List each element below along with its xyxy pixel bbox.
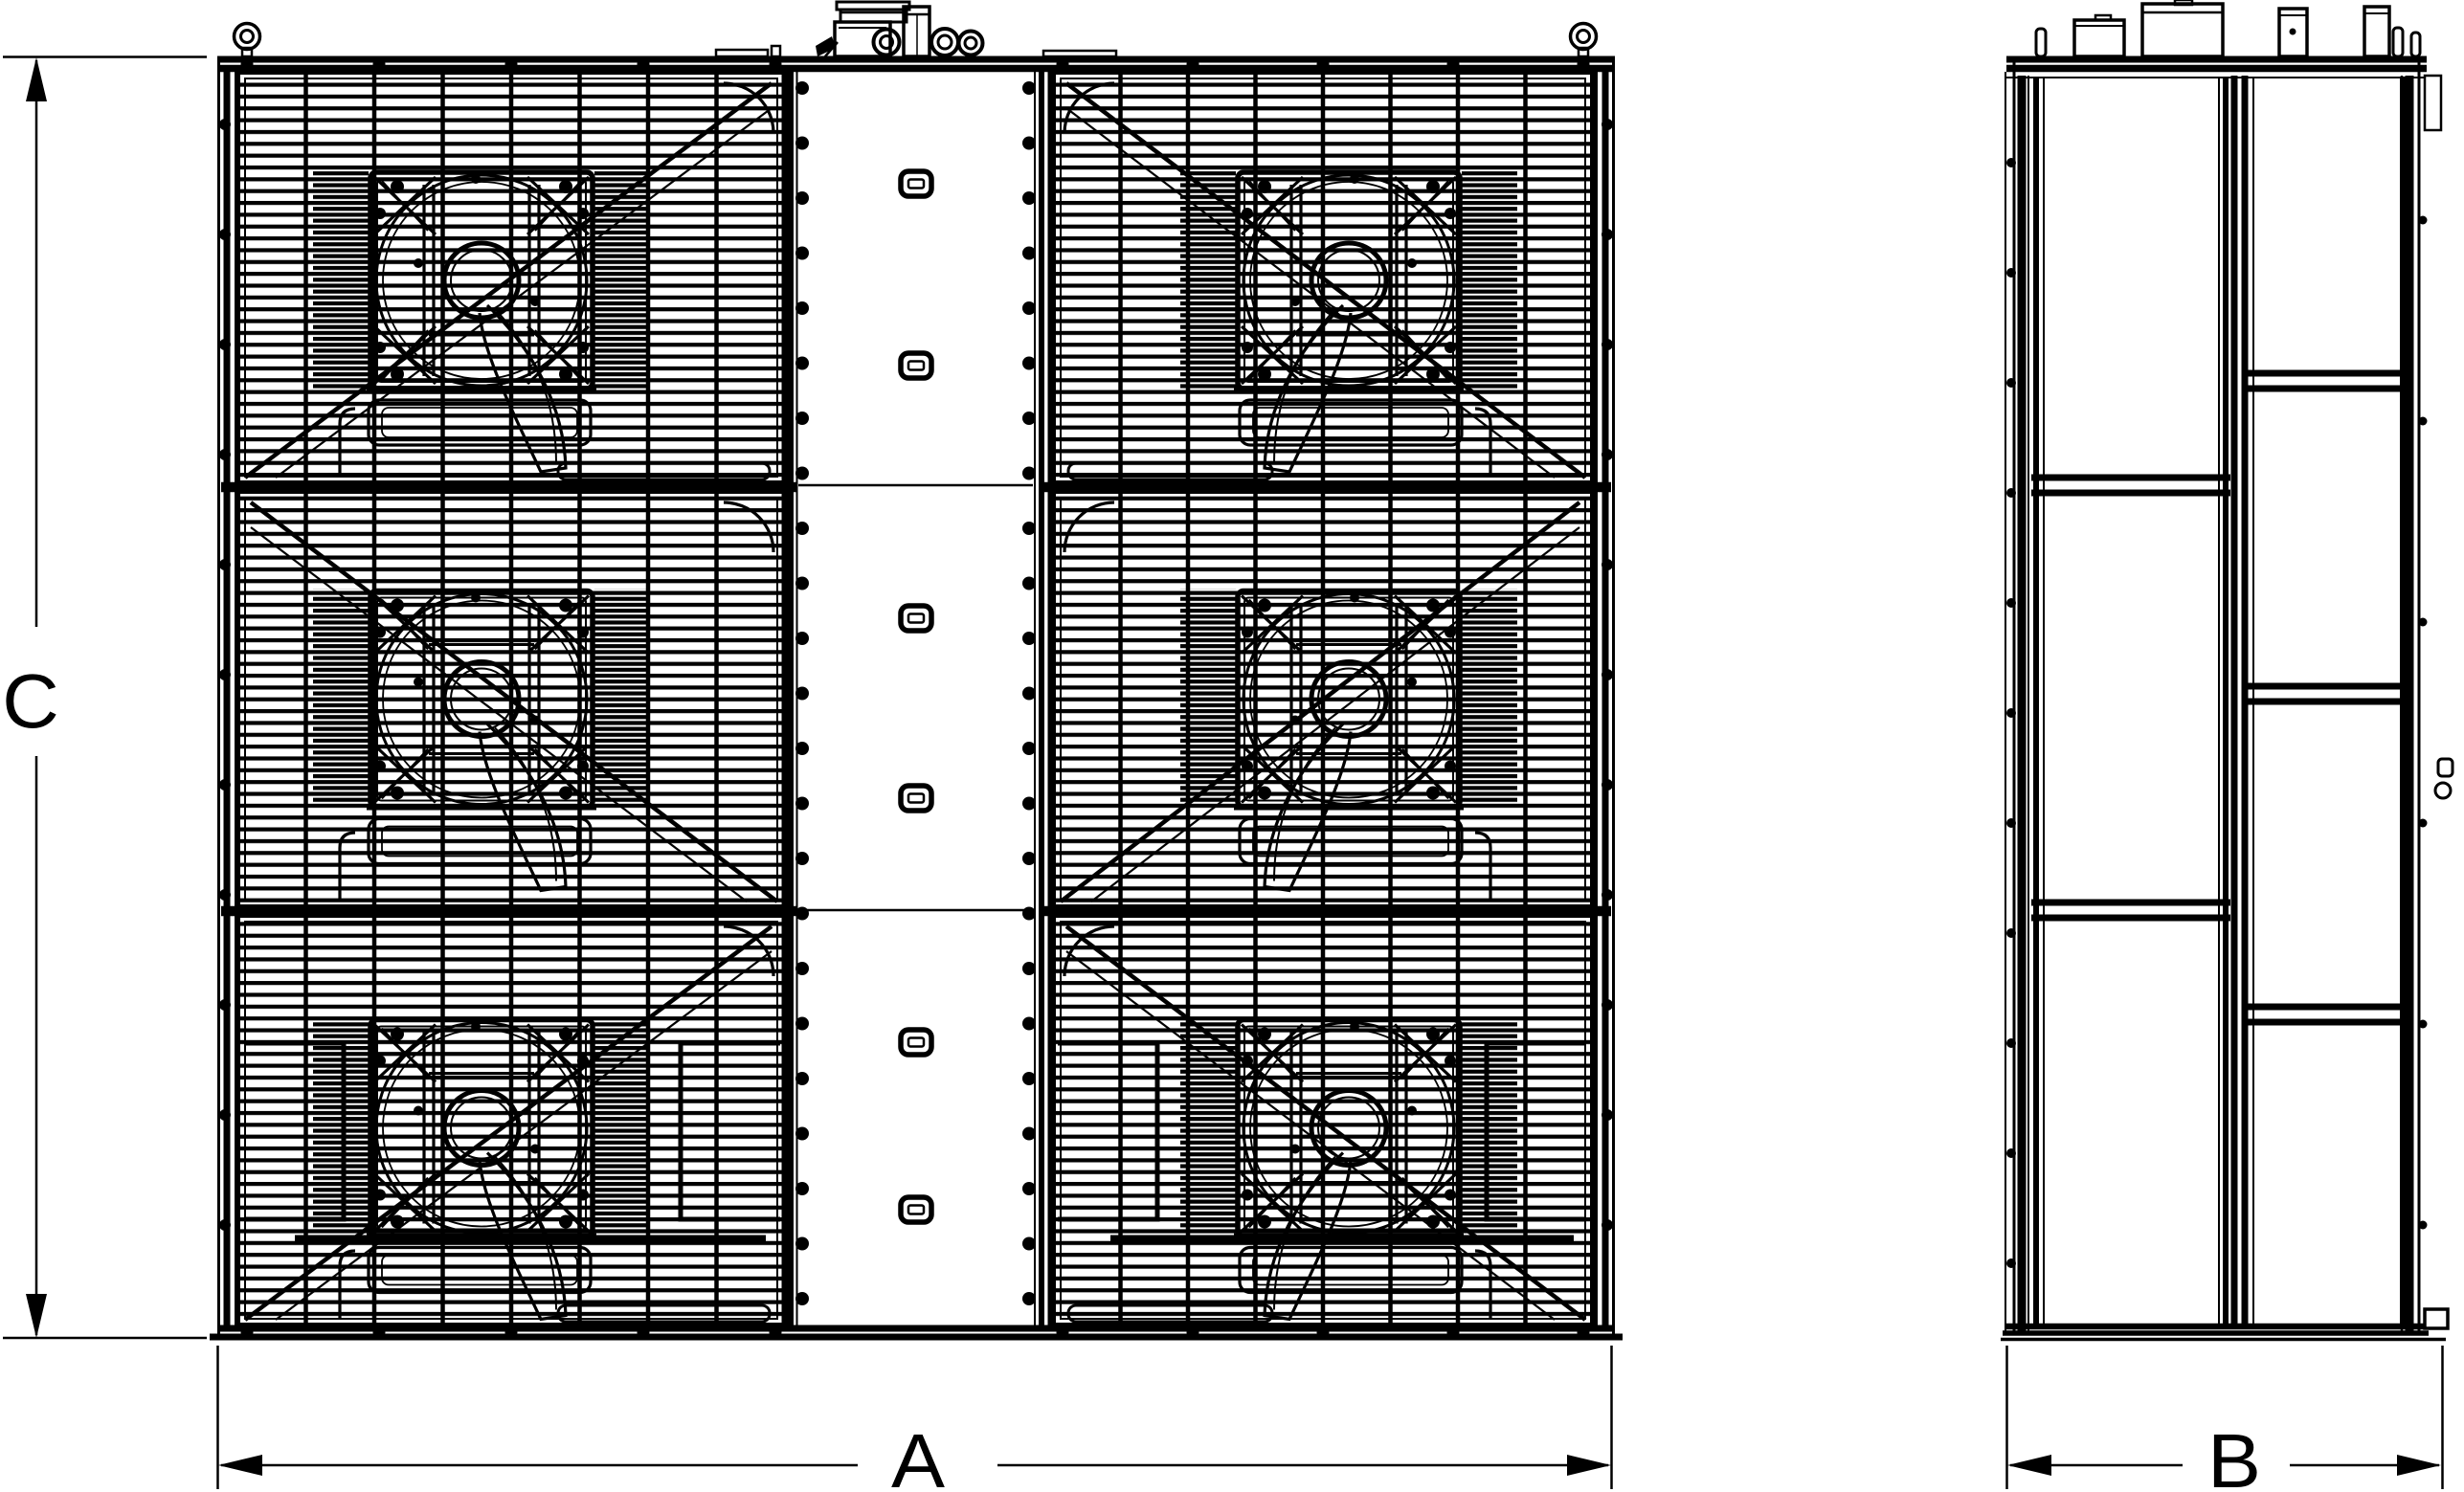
svg-text:B: B (2207, 1419, 2261, 1492)
svg-text:C: C (2, 658, 59, 745)
svg-text:A: A (891, 1419, 945, 1492)
